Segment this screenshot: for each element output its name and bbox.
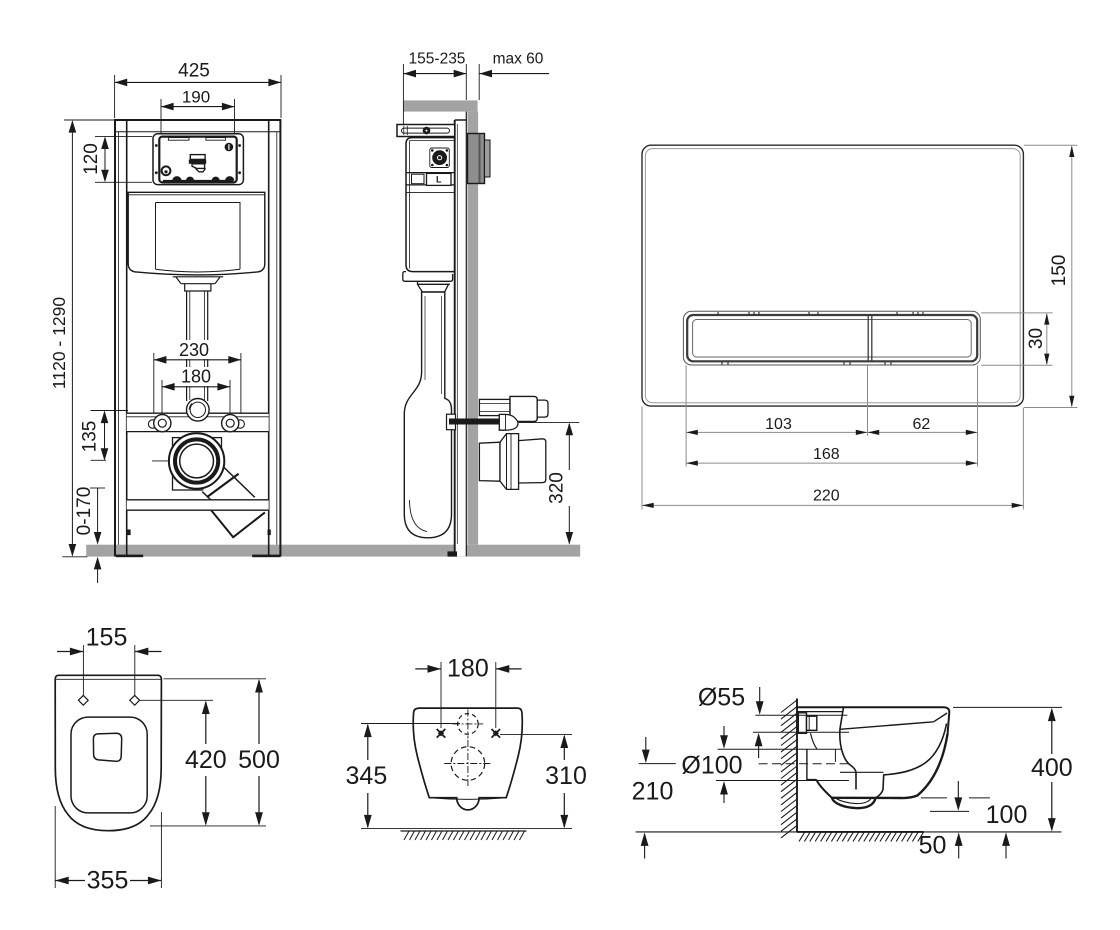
svg-text:180: 180 [447,654,489,682]
svg-text:355: 355 [87,867,129,895]
svg-text:L: L [436,175,442,185]
svg-text:210: 210 [632,778,674,806]
svg-text:168: 168 [813,446,840,463]
svg-text:135: 135 [80,421,101,453]
svg-text:500: 500 [238,746,280,774]
svg-text:1120 - 1290: 1120 - 1290 [49,297,69,389]
svg-text:425: 425 [178,61,210,82]
svg-text:230: 230 [179,340,209,360]
svg-text:180: 180 [181,367,211,387]
svg-text:Ø100: Ø100 [681,752,742,780]
svg-text:120: 120 [81,143,102,175]
svg-text:190: 190 [182,88,210,107]
svg-text:max 60: max 60 [493,50,544,67]
svg-text:320: 320 [547,472,568,504]
svg-text:150: 150 [1049,255,1070,287]
svg-text:50: 50 [919,832,947,860]
svg-text:155: 155 [86,624,128,652]
svg-text:420: 420 [185,746,227,774]
svg-text:100: 100 [986,801,1028,829]
svg-text:310: 310 [545,762,587,790]
svg-text:400: 400 [1031,754,1073,782]
svg-text:30: 30 [1026,328,1047,349]
svg-text:155-235: 155-235 [409,50,466,67]
svg-text:Ø55: Ø55 [698,684,745,712]
svg-text:220: 220 [813,488,840,505]
svg-text:0-170: 0-170 [74,487,95,536]
svg-text:345: 345 [346,762,388,790]
svg-text:103: 103 [765,416,792,433]
svg-text:62: 62 [913,416,931,433]
